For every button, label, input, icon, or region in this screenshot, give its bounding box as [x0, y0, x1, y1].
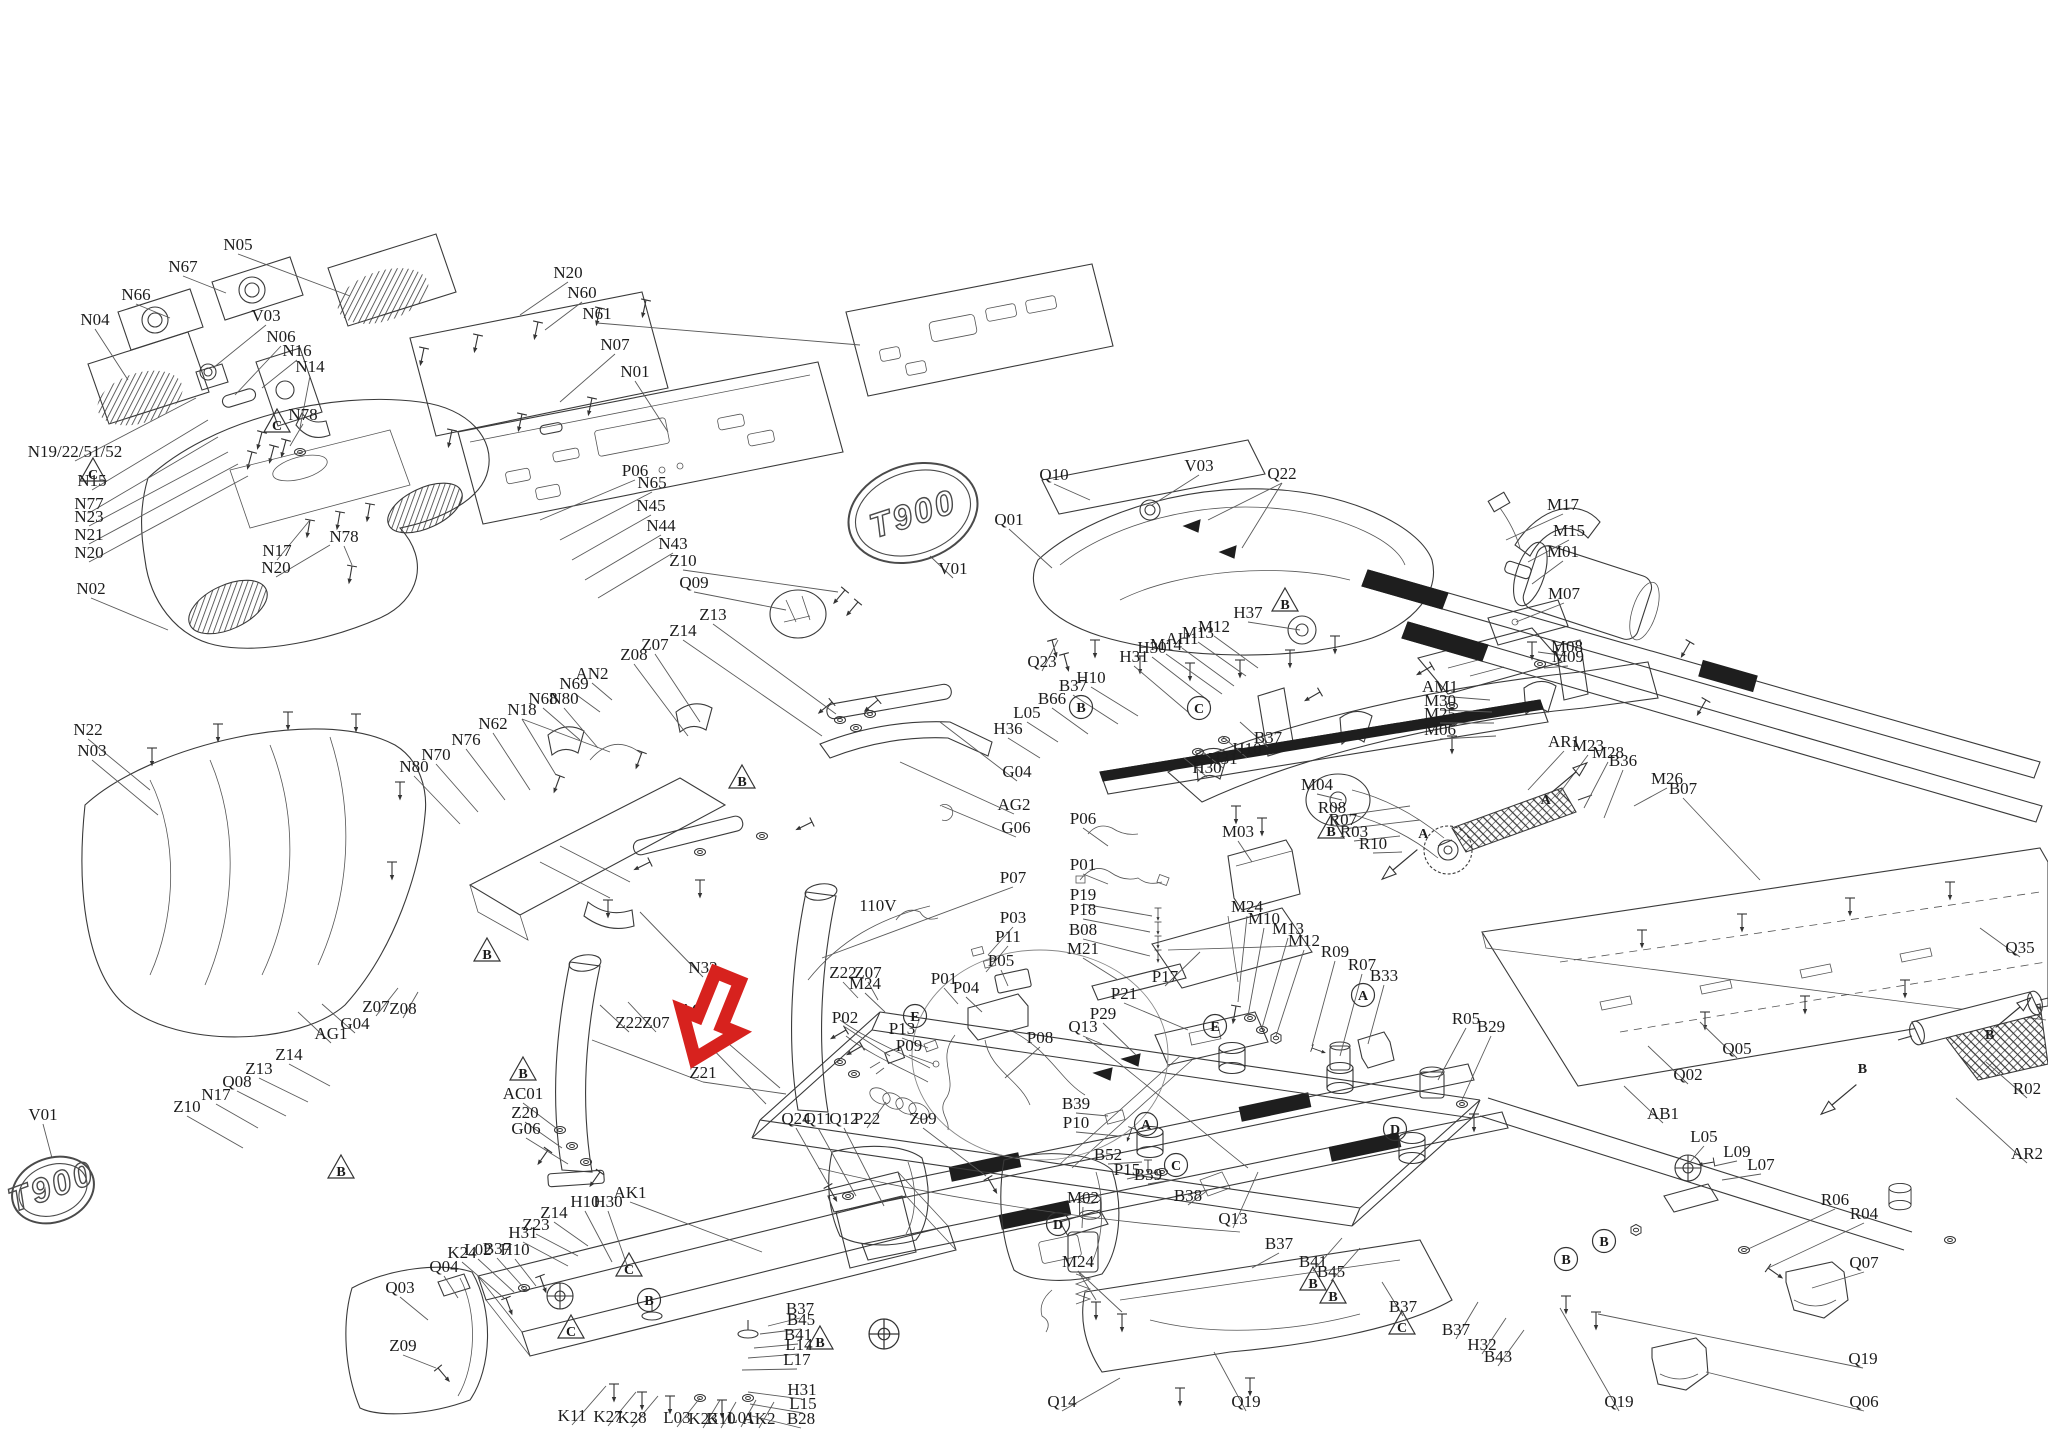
- part-label-N80: N80: [399, 757, 460, 824]
- svg-text:AC01: AC01: [503, 1084, 544, 1103]
- svg-text:P10: P10: [1063, 1113, 1089, 1132]
- svg-text:G06: G06: [511, 1119, 540, 1138]
- part-label-R09: R09: [1312, 942, 1349, 1046]
- part-label-Z09: Z09: [389, 1336, 436, 1368]
- svg-text:Q13: Q13: [1068, 1017, 1097, 1036]
- svg-text:N78: N78: [288, 405, 317, 424]
- part-label-N03: N03: [77, 741, 158, 815]
- left-upright-mast: [533, 953, 604, 1190]
- svg-text:Z07: Z07: [642, 1013, 670, 1032]
- part-label-Z08: Z08: [389, 992, 418, 1018]
- svg-text:M24: M24: [1062, 1252, 1095, 1271]
- svg-text:N65: N65: [637, 473, 666, 492]
- svg-text:B07: B07: [1669, 779, 1698, 798]
- part-label-B37: B37: [1382, 1282, 1418, 1316]
- triangle-marker-B: B: [328, 1155, 354, 1180]
- svg-text:B45: B45: [1317, 1262, 1345, 1281]
- part-label-M04: M04: [1301, 775, 1342, 800]
- part-label-Q35: Q35: [1980, 928, 2035, 957]
- svg-text:B36: B36: [1609, 751, 1637, 770]
- svg-text:Q35: Q35: [2005, 938, 2034, 957]
- part-label-Q03: Q03: [385, 1278, 428, 1320]
- svg-text:Q02: Q02: [1673, 1065, 1702, 1084]
- svg-text:P07: P07: [1000, 868, 1027, 887]
- circle-marker-B: B: [638, 1289, 661, 1312]
- svg-text:N80: N80: [549, 689, 578, 708]
- svg-text:B29: B29: [1477, 1017, 1505, 1036]
- svg-text:B: B: [1326, 825, 1335, 840]
- svg-text:A: A: [1141, 1118, 1152, 1133]
- part-label-Z13: Z13: [245, 1059, 308, 1102]
- part-label-P02: P02: [832, 1008, 890, 1056]
- svg-text:M15: M15: [1553, 521, 1585, 540]
- circle-marker-B: B: [1070, 696, 1093, 719]
- svg-text:B: B: [1858, 1062, 1867, 1077]
- svg-text:Q13: Q13: [1218, 1209, 1247, 1228]
- part-label-P01: P01: [1070, 855, 1108, 884]
- svg-text:P04: P04: [953, 978, 980, 997]
- svg-text:B: B: [1985, 1028, 1994, 1043]
- part-label-AB1: AB1: [1624, 1086, 1679, 1123]
- svg-text:B: B: [1328, 1290, 1337, 1305]
- svg-text:R04: R04: [1850, 1204, 1879, 1223]
- handlebar-tubes: [815, 683, 992, 820]
- part-label-L05: L05: [1690, 1127, 1718, 1162]
- svg-text:B66: B66: [1038, 689, 1066, 708]
- svg-text:Q10: Q10: [1039, 465, 1068, 484]
- svg-text:G04: G04: [1002, 762, 1032, 781]
- svg-text:H30: H30: [1192, 758, 1221, 777]
- svg-text:M06: M06: [1424, 720, 1456, 739]
- svg-text:N02: N02: [76, 579, 105, 598]
- svg-text:N03: N03: [77, 741, 106, 760]
- svg-text:AR2: AR2: [2011, 1144, 2043, 1163]
- svg-text:Q04: Q04: [429, 1257, 459, 1276]
- svg-text:Z10: Z10: [173, 1097, 200, 1116]
- svg-text:P03: P03: [1000, 908, 1026, 927]
- svg-text:N23: N23: [74, 507, 103, 526]
- part-label-B29: B29: [1462, 1017, 1505, 1100]
- svg-text:G06: G06: [1001, 818, 1030, 837]
- svg-text:N17: N17: [201, 1085, 231, 1104]
- svg-text:B28: B28: [787, 1409, 815, 1428]
- svg-text:N14: N14: [295, 357, 325, 376]
- part-label-N80: N80: [549, 689, 598, 748]
- svg-text:B: B: [1308, 1277, 1317, 1292]
- svg-text:AG1: AG1: [314, 1024, 347, 1043]
- svg-text:N05: N05: [223, 235, 252, 254]
- part-label-N17: N17: [262, 520, 310, 560]
- motor-hood-cover: [1033, 440, 1433, 682]
- svg-text:Q05: Q05: [1722, 1039, 1751, 1058]
- svg-text:N76: N76: [451, 730, 480, 749]
- part-label-B36: B36: [1604, 751, 1637, 818]
- part-label-Q01: Q01: [994, 510, 1052, 568]
- svg-text:Q23: Q23: [1027, 652, 1056, 671]
- part-label-N76: N76: [451, 730, 505, 800]
- console-main-body: [142, 399, 490, 648]
- svg-text:N60: N60: [567, 283, 596, 302]
- svg-text:K28: K28: [617, 1408, 646, 1427]
- svg-text:M02: M02: [1067, 1188, 1099, 1207]
- svg-text:V01: V01: [28, 1105, 57, 1124]
- svg-text:M21: M21: [1067, 939, 1099, 958]
- svg-text:Q11: Q11: [804, 1109, 833, 1128]
- svg-text:B: B: [336, 1165, 345, 1180]
- svg-text:Q19: Q19: [1604, 1392, 1633, 1411]
- part-label-N32: N32: [640, 912, 718, 977]
- brand-logo-text: T900: [865, 482, 962, 546]
- svg-text:B38: B38: [1174, 1186, 1202, 1205]
- part-label-Q14: Q14: [1047, 1378, 1120, 1411]
- part-label-N18: N18: [507, 700, 610, 775]
- svg-text:B39: B39: [1134, 1165, 1162, 1184]
- svg-text:P18: P18: [1070, 900, 1096, 919]
- part-label-P22: P22: [854, 1102, 886, 1128]
- svg-text:B: B: [815, 1336, 824, 1351]
- part-label-N02: N02: [76, 579, 168, 630]
- svg-text:N18: N18: [507, 700, 536, 719]
- svg-text:C: C: [272, 419, 282, 434]
- svg-text:N44: N44: [646, 516, 676, 535]
- svg-text:B: B: [737, 775, 746, 790]
- part-label-Z10: Z10: [173, 1097, 243, 1148]
- circle-marker-A: A: [1352, 984, 1375, 1007]
- circle-marker-C: C: [1165, 1154, 1188, 1177]
- svg-text:M09: M09: [1552, 647, 1584, 666]
- brand-logo-oval: T900: [0, 1145, 106, 1236]
- rear-endcaps-and-hardware: [1652, 1155, 1956, 1390]
- part-label-P09: P09: [896, 1036, 934, 1064]
- triangle-marker-C: C: [616, 1253, 642, 1278]
- svg-text:Q14: Q14: [1047, 1392, 1077, 1411]
- svg-text:C: C: [88, 468, 98, 483]
- part-label-Z14: Z14: [275, 1045, 330, 1086]
- svg-text:H31: H31: [1119, 647, 1148, 666]
- svg-text:P22: P22: [854, 1109, 880, 1128]
- part-label-K28: K28: [617, 1396, 658, 1427]
- svg-text:M24: M24: [849, 974, 882, 993]
- circle-marker-D: D: [1384, 1118, 1407, 1141]
- svg-text:Q19: Q19: [1231, 1392, 1260, 1411]
- svg-text:Z08: Z08: [389, 999, 416, 1018]
- part-label-N62: N62: [478, 714, 530, 790]
- svg-text:Z10: Z10: [669, 551, 696, 570]
- misc-cables: [808, 906, 1240, 1232]
- part-label-Z13: Z13: [699, 605, 836, 714]
- svg-text:L03: L03: [663, 1408, 690, 1427]
- svg-text:C: C: [1171, 1159, 1181, 1174]
- part-label-N67: N67: [168, 257, 226, 293]
- part-label-P17: P17: [1152, 952, 1200, 986]
- part-label-L09: L09: [1714, 1142, 1751, 1166]
- exploded-parts-diagram-page: { "diagram": { "title": "T900 treadmill …: [0, 0, 2048, 1448]
- console-mast-frame: [470, 704, 725, 940]
- svg-text:P21: P21: [1111, 984, 1137, 1003]
- svg-text:R09: R09: [1321, 942, 1349, 961]
- part-label-P10: P10: [1063, 1113, 1118, 1136]
- part-label-Q08: Q08: [222, 1072, 286, 1116]
- triangle-marker-B: B: [510, 1057, 536, 1082]
- part-label-N70: N70: [421, 745, 478, 812]
- part-label-N66: N66: [121, 285, 170, 318]
- svg-text:Z22: Z22: [615, 1013, 642, 1032]
- part-label-Q09: Q09: [679, 573, 786, 610]
- svg-text:V03: V03: [1184, 456, 1213, 475]
- circle-marker-A: A: [1135, 1113, 1158, 1136]
- part-label-Q05: Q05: [1700, 1022, 1752, 1058]
- svg-text:M01: M01: [1547, 542, 1579, 561]
- svg-text:M17: M17: [1547, 495, 1580, 514]
- svg-text:M04: M04: [1301, 775, 1334, 794]
- svg-text:L05: L05: [1690, 1127, 1717, 1146]
- part-label-Q19: Q19: [1560, 1308, 1634, 1411]
- svg-text:B08: B08: [1069, 920, 1097, 939]
- svg-text:Z08: Z08: [620, 645, 647, 664]
- part-label-AK1: AK1: [613, 1183, 762, 1252]
- svg-text:B39: B39: [1062, 1094, 1090, 1113]
- part-label-Q10: Q10: [1039, 465, 1090, 500]
- part-label-M03: M03: [1222, 822, 1254, 862]
- part-label-V03: V03: [1152, 456, 1214, 505]
- part-label-M02: M02: [1067, 1188, 1099, 1228]
- part-label-R06: R06: [1746, 1190, 1849, 1250]
- svg-text:N19/22/51/52: N19/22/51/52: [28, 442, 122, 461]
- part-label-V01: V01: [930, 556, 968, 578]
- part-label-B38: B38: [1174, 1186, 1208, 1205]
- svg-text:M12: M12: [1288, 931, 1320, 950]
- part-label-H37: H37: [1233, 603, 1300, 630]
- part-label-Z07: Z07: [641, 635, 700, 722]
- triangle-marker-C: C: [558, 1315, 584, 1340]
- part-label-B37: B37: [1442, 1302, 1478, 1339]
- part-label-P06: P06: [540, 461, 648, 520]
- svg-text:Z14: Z14: [669, 621, 697, 640]
- svg-text:N20: N20: [261, 558, 290, 577]
- svg-text:A: A: [1358, 989, 1369, 1004]
- svg-text:Q09: Q09: [679, 573, 708, 592]
- highlight-arrow-layer: [667, 966, 756, 1070]
- svg-text:K11: K11: [558, 1406, 587, 1425]
- svg-text:N20: N20: [74, 543, 103, 562]
- part-label-Q19: Q19: [1598, 1314, 1878, 1368]
- svg-text:AG2: AG2: [997, 795, 1030, 814]
- circle-marker-E: E: [1204, 1015, 1227, 1038]
- svg-text:P09: P09: [896, 1036, 922, 1055]
- svg-text:P06: P06: [1070, 809, 1096, 828]
- svg-text:B: B: [1561, 1253, 1570, 1268]
- svg-text:N62: N62: [478, 714, 507, 733]
- svg-text:B43: B43: [1484, 1347, 1512, 1366]
- part-label-Q04: Q04: [429, 1257, 459, 1298]
- brand-logo-text: T900: [3, 1154, 100, 1220]
- svg-text:B: B: [1599, 1235, 1608, 1250]
- circle-marker-B: B: [1555, 1248, 1578, 1271]
- console-bottom-shell: [82, 712, 426, 1037]
- triangle-marker-B: B: [1272, 588, 1298, 613]
- svg-text:P05: P05: [988, 951, 1014, 970]
- svg-text:C: C: [624, 1263, 634, 1278]
- svg-text:N78: N78: [329, 527, 358, 546]
- part-label-Z22: Z22: [600, 1005, 643, 1032]
- svg-text:B: B: [482, 948, 491, 963]
- brand-frame-crossbars: [631, 815, 814, 875]
- svg-text:B: B: [1280, 598, 1289, 613]
- svg-text:AB1: AB1: [1647, 1104, 1679, 1123]
- part-label-Q06: Q06: [1706, 1372, 1879, 1411]
- part-label-H30: H30: [593, 1192, 628, 1268]
- handlebar-pivot-disc: [770, 587, 862, 638]
- svg-text:C: C: [1194, 702, 1204, 717]
- svg-text:Q07: Q07: [1849, 1253, 1879, 1272]
- svg-text:Z09: Z09: [389, 1336, 416, 1355]
- svg-text:B37: B37: [1442, 1320, 1471, 1339]
- svg-text:B33: B33: [1370, 966, 1398, 985]
- circle-marker-B: B: [1593, 1230, 1616, 1253]
- part-label-Q19: Q19: [1214, 1352, 1261, 1411]
- svg-text:P08: P08: [1027, 1028, 1053, 1047]
- svg-text:C: C: [1397, 1321, 1407, 1336]
- svg-text:B37: B37: [1265, 1234, 1294, 1253]
- svg-text:Z14: Z14: [275, 1045, 303, 1064]
- svg-text:N61: N61: [582, 304, 611, 323]
- svg-text:R10: R10: [1359, 834, 1387, 853]
- part-label-AR2: AR2: [1956, 1098, 2043, 1163]
- svg-text:Q22: Q22: [1267, 464, 1296, 483]
- part-label-M24: M24: [1062, 1252, 1122, 1312]
- svg-text:E: E: [1210, 1020, 1219, 1035]
- part-label-N05: N05: [223, 235, 350, 296]
- svg-text:N80: N80: [399, 757, 428, 776]
- part-label-V01: V01: [28, 1105, 57, 1158]
- svg-text:D: D: [1053, 1218, 1063, 1233]
- svg-text:P01: P01: [1070, 855, 1096, 874]
- svg-text:M07: M07: [1548, 584, 1581, 603]
- svg-text:A: A: [1418, 827, 1429, 842]
- svg-text:A: A: [1541, 793, 1552, 808]
- svg-text:V03: V03: [251, 306, 280, 325]
- svg-text:N67: N67: [168, 257, 198, 276]
- svg-text:L17: L17: [783, 1350, 811, 1369]
- part-label-Z08: Z08: [620, 645, 688, 736]
- rear-roller: [1898, 990, 2048, 1080]
- part-label-P21: P21: [1111, 984, 1188, 1030]
- circle-marker-C: C: [1188, 697, 1211, 720]
- part-label-L17: L17: [742, 1350, 811, 1370]
- svg-text:N20: N20: [553, 263, 582, 282]
- svg-text:Z09: Z09: [909, 1109, 936, 1128]
- svg-text:N22: N22: [73, 720, 102, 739]
- svg-text:H36: H36: [993, 719, 1022, 738]
- svg-text:N45: N45: [636, 496, 665, 515]
- svg-text:R06: R06: [1821, 1190, 1849, 1209]
- svg-text:B: B: [644, 1294, 653, 1309]
- svg-text:B: B: [1076, 701, 1085, 716]
- controller-board-parts: [1076, 826, 1479, 1196]
- svg-text:R02: R02: [2013, 1079, 2041, 1098]
- svg-text:H37: H37: [1233, 603, 1263, 622]
- red-highlight-arrow: [667, 966, 756, 1070]
- svg-text:M03: M03: [1222, 822, 1254, 841]
- svg-text:Q19: Q19: [1848, 1349, 1877, 1368]
- part-label-P06: P06: [1070, 809, 1108, 846]
- svg-text:Z13: Z13: [699, 605, 726, 624]
- part-label-P05: P05: [988, 951, 1014, 986]
- part-label-Q02: Q02: [1648, 1046, 1703, 1084]
- diagram-canvas: T900 treadmill exploded parts diagram: [0, 0, 2048, 1448]
- triangle-marker-B: B: [1320, 1280, 1346, 1305]
- svg-text:N66: N66: [121, 285, 150, 304]
- svg-text:V01: V01: [938, 559, 967, 578]
- svg-text:H30: H30: [593, 1192, 622, 1211]
- svg-text:Q01: Q01: [994, 510, 1023, 529]
- svg-text:N04: N04: [80, 310, 110, 329]
- svg-text:P02: P02: [832, 1008, 858, 1027]
- part-label-N78: N78: [329, 527, 358, 565]
- part-label-B07: B07: [1669, 779, 1760, 880]
- svg-text:D: D: [1390, 1123, 1400, 1138]
- svg-text:AK2: AK2: [742, 1409, 775, 1428]
- triangle-marker-B: B: [729, 765, 755, 790]
- part-label-M01: M01: [1532, 542, 1579, 584]
- part-label-P04: P04: [953, 978, 982, 1012]
- part-label-M24: M24: [849, 974, 885, 1012]
- svg-text:N21: N21: [74, 525, 103, 544]
- right-upright-mast: [792, 882, 930, 1112]
- svg-text:N01: N01: [620, 362, 649, 381]
- part-labels-layer: N05N67N66N04V03N06N16N14N78N19/22/51/52N…: [28, 235, 2043, 1428]
- triangle-marker-B: B: [474, 938, 500, 963]
- voltage-note: 110V: [859, 896, 897, 915]
- part-label-N17: N17: [201, 1085, 258, 1128]
- svg-text:H10: H10: [500, 1240, 529, 1259]
- svg-text:Q03: Q03: [385, 1278, 414, 1297]
- svg-text:L07: L07: [1747, 1155, 1775, 1174]
- svg-text:P17: P17: [1152, 967, 1179, 986]
- part-label-H36: H36: [993, 719, 1040, 758]
- svg-text:P11: P11: [995, 927, 1021, 946]
- svg-text:N07: N07: [600, 335, 630, 354]
- svg-text:Q06: Q06: [1849, 1392, 1878, 1411]
- svg-text:B: B: [518, 1067, 527, 1082]
- view-direction-arrow-B: B: [1811, 1057, 1877, 1118]
- svg-text:E: E: [910, 1010, 919, 1025]
- part-label-N78: N78: [288, 405, 317, 446]
- console-keypad-overlay: [846, 264, 1113, 396]
- svg-text:C: C: [566, 1325, 576, 1340]
